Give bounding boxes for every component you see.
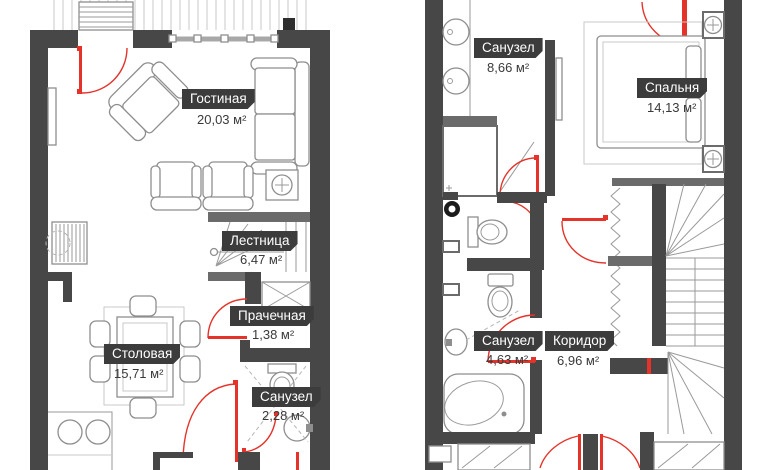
corridor-door [562,215,608,263]
bottom-double-door [540,432,654,470]
bottom-wall-left-plan [153,452,260,470]
dining-chair [130,296,156,316]
floor-plan-drawing [0,0,780,470]
dining-chair [90,321,110,347]
terrace-door [77,46,127,94]
side-table-lamp [266,170,298,200]
room-name: Гостиная [182,89,255,109]
dining-chair [130,398,156,418]
toilet-tank [488,274,513,286]
room-name: Санузел [474,38,543,58]
closet-bottom-left [458,444,530,470]
room-name: Санузел [252,387,321,407]
room-area: 15,71 м² [114,366,163,381]
staircase-second-floor [610,184,724,434]
closet-bottom-right [654,442,724,470]
deck-post [283,18,295,30]
room-name: Спальня [637,78,707,98]
tv-bedroom [556,58,562,120]
room-area: 8,66 м² [487,60,529,75]
terrace-steps [79,2,133,30]
room-name: Лестница [222,231,298,251]
kitchen-sink [86,420,110,444]
right-floor-plan [425,0,742,470]
dining-chair [180,321,200,347]
room-name: Прачечная [230,306,314,326]
room-area: 20,03 м² [197,112,246,127]
entry-door [183,380,238,462]
room-name: Коридор [545,331,614,351]
boiler [444,201,460,217]
room-area: 6,47 м² [240,252,282,267]
bathtub [444,374,524,434]
sink [443,68,469,94]
sofa [251,58,309,174]
armchair-2 [203,162,253,210]
room-name: Санузел [474,331,543,351]
room-area: 6,96 м² [557,353,599,368]
terrace-deck [54,0,306,30]
fireplace [46,222,87,264]
partition-wall [545,40,555,196]
nightstand-lamp [703,12,724,38]
kitchen-sink [58,420,82,444]
window [169,35,278,42]
shower-cabin [443,116,534,196]
kitchen-counter [48,412,112,470]
tv-unit [48,88,56,145]
vanity [443,0,470,118]
room-area: 1,38 м² [252,327,294,342]
armchair-1 [151,162,201,210]
room-area: 14,13 м² [647,100,696,115]
room-area: 2,28 м² [262,408,304,423]
armchair-rotated [101,54,192,145]
washing-machine [262,282,310,310]
sink [443,19,469,45]
room-area: 4,63 м² [486,352,528,367]
dining-chair [180,356,200,382]
nightstand-lamp [703,146,724,172]
floor-plan-page: Гостиная 20,03 м² Лестница 6,47 м² Праче… [0,0,780,470]
room-name: Столовая [104,344,180,364]
